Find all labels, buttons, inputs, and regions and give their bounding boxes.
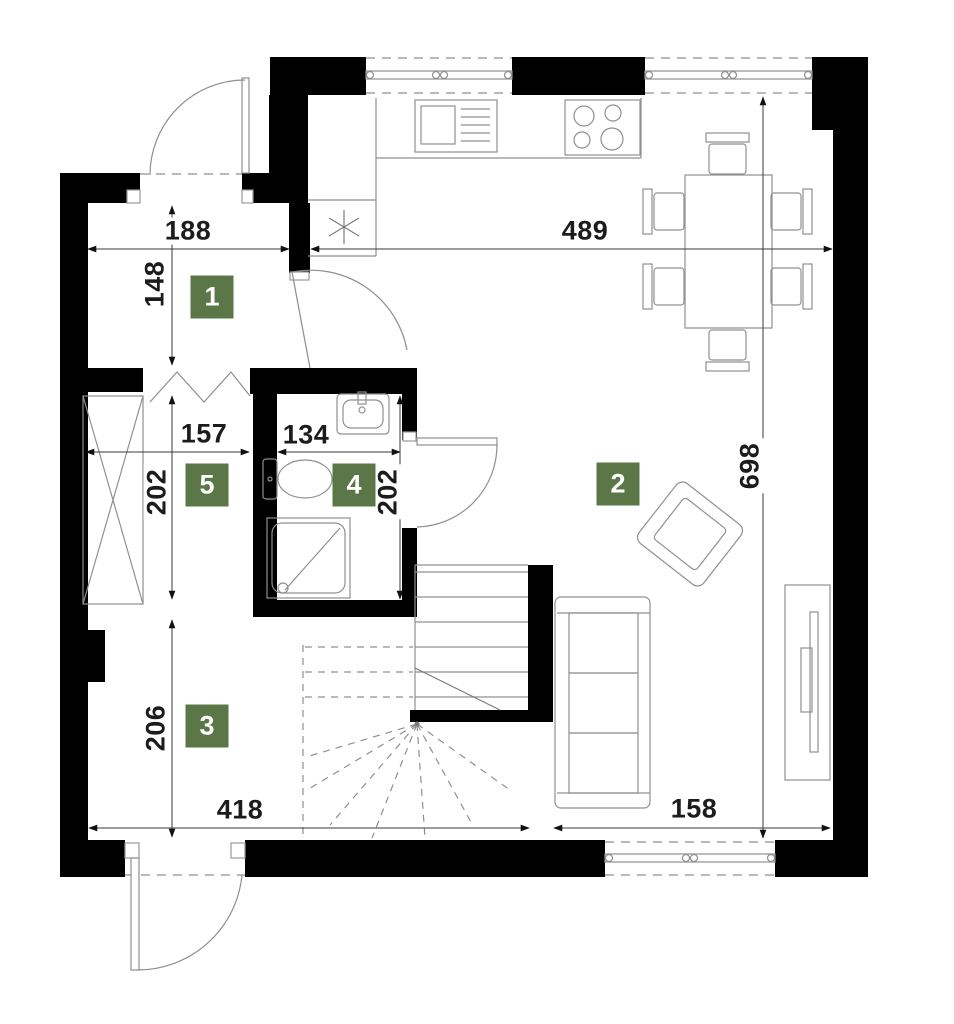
room5-opening-zigzag	[150, 372, 250, 402]
dining-chair-left-2	[643, 264, 684, 309]
window-bottom	[605, 842, 775, 875]
dim-label-room3-height: 206	[143, 701, 170, 756]
stairs-hidden-winders	[303, 645, 510, 838]
boiler-symbol	[329, 210, 359, 244]
dining-chair-left-1	[643, 189, 684, 234]
living-room-furniture	[555, 479, 830, 808]
room-badge-2: 2	[597, 463, 640, 506]
shower	[267, 518, 350, 598]
bathroom-sink	[337, 392, 389, 434]
bottom-exterior-door	[125, 843, 245, 970]
dining-table	[685, 175, 772, 328]
sofa	[555, 597, 650, 808]
kitchen-sink	[415, 100, 497, 152]
dining-chair-right-1	[771, 189, 812, 234]
dim-label-room5-width: 157	[177, 421, 232, 448]
doors	[125, 78, 497, 970]
dining-set	[643, 133, 812, 371]
dim-label-room3-width: 418	[213, 797, 268, 824]
dining-chair-right-2	[771, 264, 812, 309]
window-top-left	[366, 58, 512, 93]
bathroom-door	[403, 432, 497, 527]
dim-label-room1-height: 148	[142, 257, 169, 312]
dim-label-bathroom-height: 202	[375, 465, 402, 520]
dim-label-room5-height: 202	[144, 465, 171, 520]
wardrobe	[83, 396, 143, 604]
floor-plan: 188 148 489 698 157 134 202 202 206 418 …	[0, 0, 954, 1024]
dining-chair-top	[706, 133, 749, 174]
armchair	[634, 479, 745, 589]
stove	[565, 100, 640, 155]
entry-door	[127, 78, 253, 203]
room-badge-4: 4	[333, 464, 376, 507]
dim-label-bathroom-width: 134	[279, 422, 334, 449]
tv-cabinet	[785, 585, 830, 780]
room-badge-1: 1	[191, 276, 234, 319]
dim-label-living-window: 158	[667, 796, 722, 823]
window-top-right	[645, 58, 812, 93]
room-badge-5: 5	[186, 464, 229, 507]
room-badge-3: 3	[186, 705, 229, 748]
hall-kitchen-door	[290, 270, 407, 368]
dim-label-room1-width: 188	[161, 218, 216, 245]
dim-label-living-height: 698	[737, 439, 764, 494]
dim-label-kitchen-width: 489	[558, 218, 613, 245]
dining-chair-bottom	[706, 330, 749, 371]
